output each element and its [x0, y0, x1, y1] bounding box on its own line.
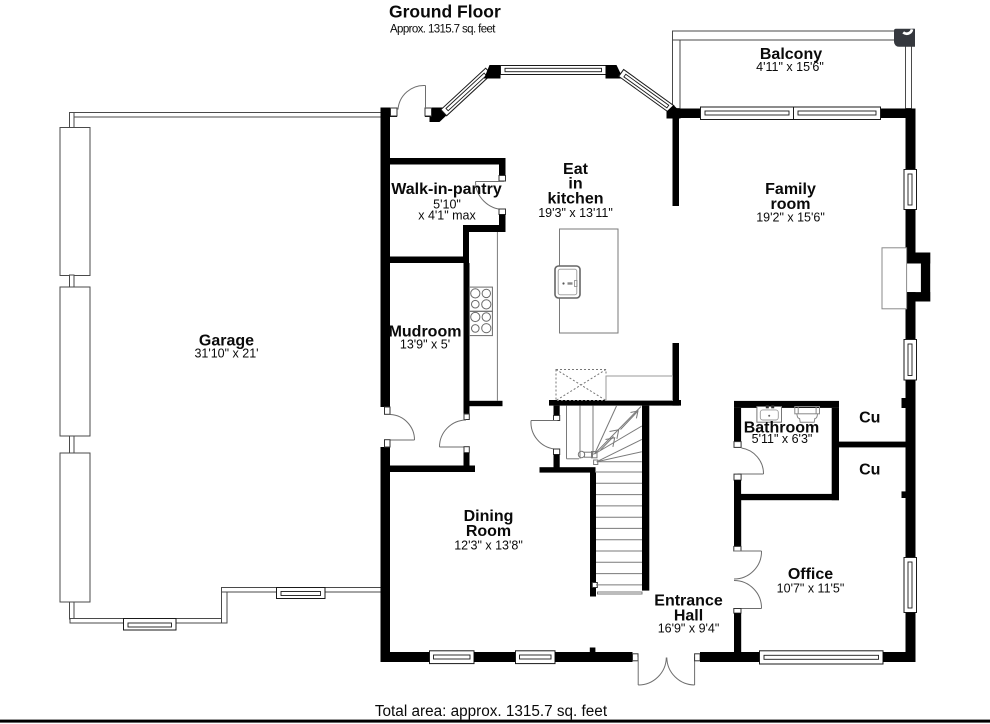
svg-text:Walk-in-pantry: Walk-in-pantry [391, 181, 502, 198]
svg-text:Cu: Cu [859, 461, 880, 478]
svg-text:Approx. 1315.7 sq. feet: Approx. 1315.7 sq. feet [390, 24, 496, 36]
svg-text:Ground Floor: Ground Floor [389, 2, 501, 22]
svg-text:19'3" x 13'11": 19'3" x 13'11" [538, 206, 613, 220]
svg-text:31'10" x 21': 31'10" x 21' [194, 347, 258, 361]
svg-text:16'9" x 9'4": 16'9" x 9'4" [658, 622, 720, 636]
svg-text:10'7" x 11'5": 10'7" x 11'5" [777, 581, 845, 595]
svg-text:13'9" x 5': 13'9" x 5' [400, 337, 450, 351]
svg-text:Cu: Cu [859, 409, 880, 426]
svg-text:Total area: approx. 1315.7 sq.: Total area: approx. 1315.7 sq. feet [375, 703, 608, 720]
svg-text:4'11" x 15'6": 4'11" x 15'6" [756, 60, 824, 74]
svg-text:5'11" x 6'3": 5'11" x 6'3" [752, 432, 813, 446]
svg-text:12'3" x 13'8": 12'3" x 13'8" [454, 539, 523, 553]
svg-text:x 4'1" max: x 4'1" max [418, 209, 476, 223]
svg-text:19'2" x 15'6": 19'2" x 15'6" [756, 211, 825, 225]
